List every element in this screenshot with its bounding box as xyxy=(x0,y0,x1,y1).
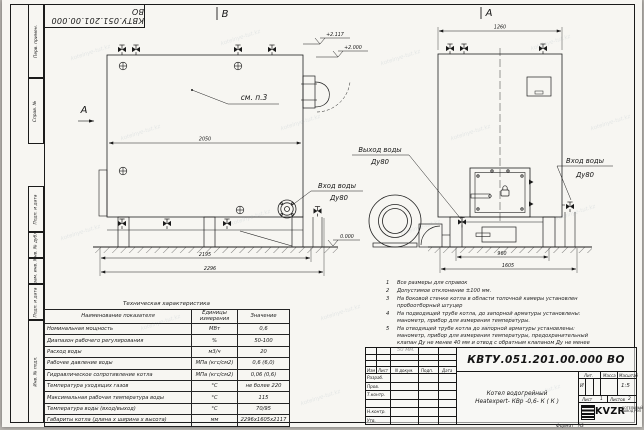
tb-lit-header: Лит. xyxy=(584,373,593,378)
tb-row-razrab: Разраб. xyxy=(367,375,383,380)
spec-row: Максимальная рабочая температура воды°С1… xyxy=(45,392,290,403)
title-block: Изм Лист N докум. Подп. Дата Разраб. Про… xyxy=(365,347,637,425)
tb-sheets-label: Листов xyxy=(610,397,625,402)
tb-lit-value: И xyxy=(580,383,584,389)
drawing-page: 2050 2195 2296 xyxy=(0,0,644,430)
tb-col-list: Лист xyxy=(378,368,388,373)
format-label: Формат А3 xyxy=(556,424,584,429)
spec-table: Наименование показателя Единицы измерени… xyxy=(44,309,290,427)
frame-field-sprav-no: Справ. № xyxy=(28,78,44,144)
note-item: 1Все размеры для справок xyxy=(386,280,592,287)
notes-section: 1Все размеры для справок 2Допустимое отк… xyxy=(386,280,592,355)
spec-row: Габариты котла (длина х ширина х высота)… xyxy=(45,415,290,426)
spec-row: Диапазон рабочего регулирования%50-100 xyxy=(45,335,290,346)
spec-row: Рабочее давление водыМПа (кгс/см2)0,6 (6… xyxy=(45,358,290,369)
frame-field-inv-dubl: Инв. № дубл. xyxy=(28,232,44,258)
tb-scale-header: Масштаб xyxy=(619,373,638,378)
frame-field-inv-podl: Инв. № подл. xyxy=(28,320,44,423)
tb-scale-value: 1:5 xyxy=(621,383,630,389)
tb-row-nkontr: Н.контр. xyxy=(367,409,386,414)
frame-field-perv-primen: Перв. примен. xyxy=(28,4,44,78)
spec-row: Гидравлическое сопротивление котлаМПа (к… xyxy=(45,369,290,380)
spec-row: Расход водым3/ч20 xyxy=(45,346,290,357)
spec-row: Номинальная мощностьМВт0,6 xyxy=(45,324,290,335)
spec-table-title: Техническая характеристика xyxy=(44,301,289,307)
tb-row-tkontr: Т.контр. xyxy=(367,392,385,397)
note-item: 3На боковой стенке котла в области топоч… xyxy=(386,296,592,310)
spec-row: Температура воды (вход/выход)°С70/95 xyxy=(45,403,290,414)
frame-field-podp-data-1: Подп. и дата xyxy=(28,186,44,232)
tb-col-podp: Подп. xyxy=(421,368,433,373)
frame-field-podp-data-2: Подп. и дата xyxy=(28,284,44,320)
kvzr-logo-subtext: КОТЕЛЬНЫЙ ЗАВОД РЭП xyxy=(622,407,643,415)
tb-sheet-label: Лист xyxy=(582,397,592,402)
tb-mass-header: Масса xyxy=(603,373,616,378)
product-name: Котел водогрейный Heatexpert- КВр -0,6- … xyxy=(456,371,578,424)
tb-col-izm: Изм xyxy=(367,368,375,373)
tb-row-prov: Пров. xyxy=(367,384,379,389)
tb-col-dokum: N докум. xyxy=(395,368,414,373)
frame-field-vzam-inv: Взам. инв. № xyxy=(28,258,44,284)
tb-sheet-value: 1 xyxy=(600,397,603,402)
kvzr-logo-icon xyxy=(581,405,595,420)
note-item: 2Допустимое отклонение ±100 мм. xyxy=(386,288,592,295)
tb-row-utv: Утв. xyxy=(367,418,376,423)
document-designation: КВТУ.051.201.00.000 ВО xyxy=(456,348,636,371)
tb-sheets-value: 2 xyxy=(628,397,631,402)
kvzr-logo-text: KVZR xyxy=(595,406,625,417)
tb-col-data: Дата xyxy=(442,368,452,373)
corner-stamp: КВТУ.051.201.00.000 ВО xyxy=(44,4,145,28)
spec-row: Температура уходящих газов°Сне более 220 xyxy=(45,380,290,391)
